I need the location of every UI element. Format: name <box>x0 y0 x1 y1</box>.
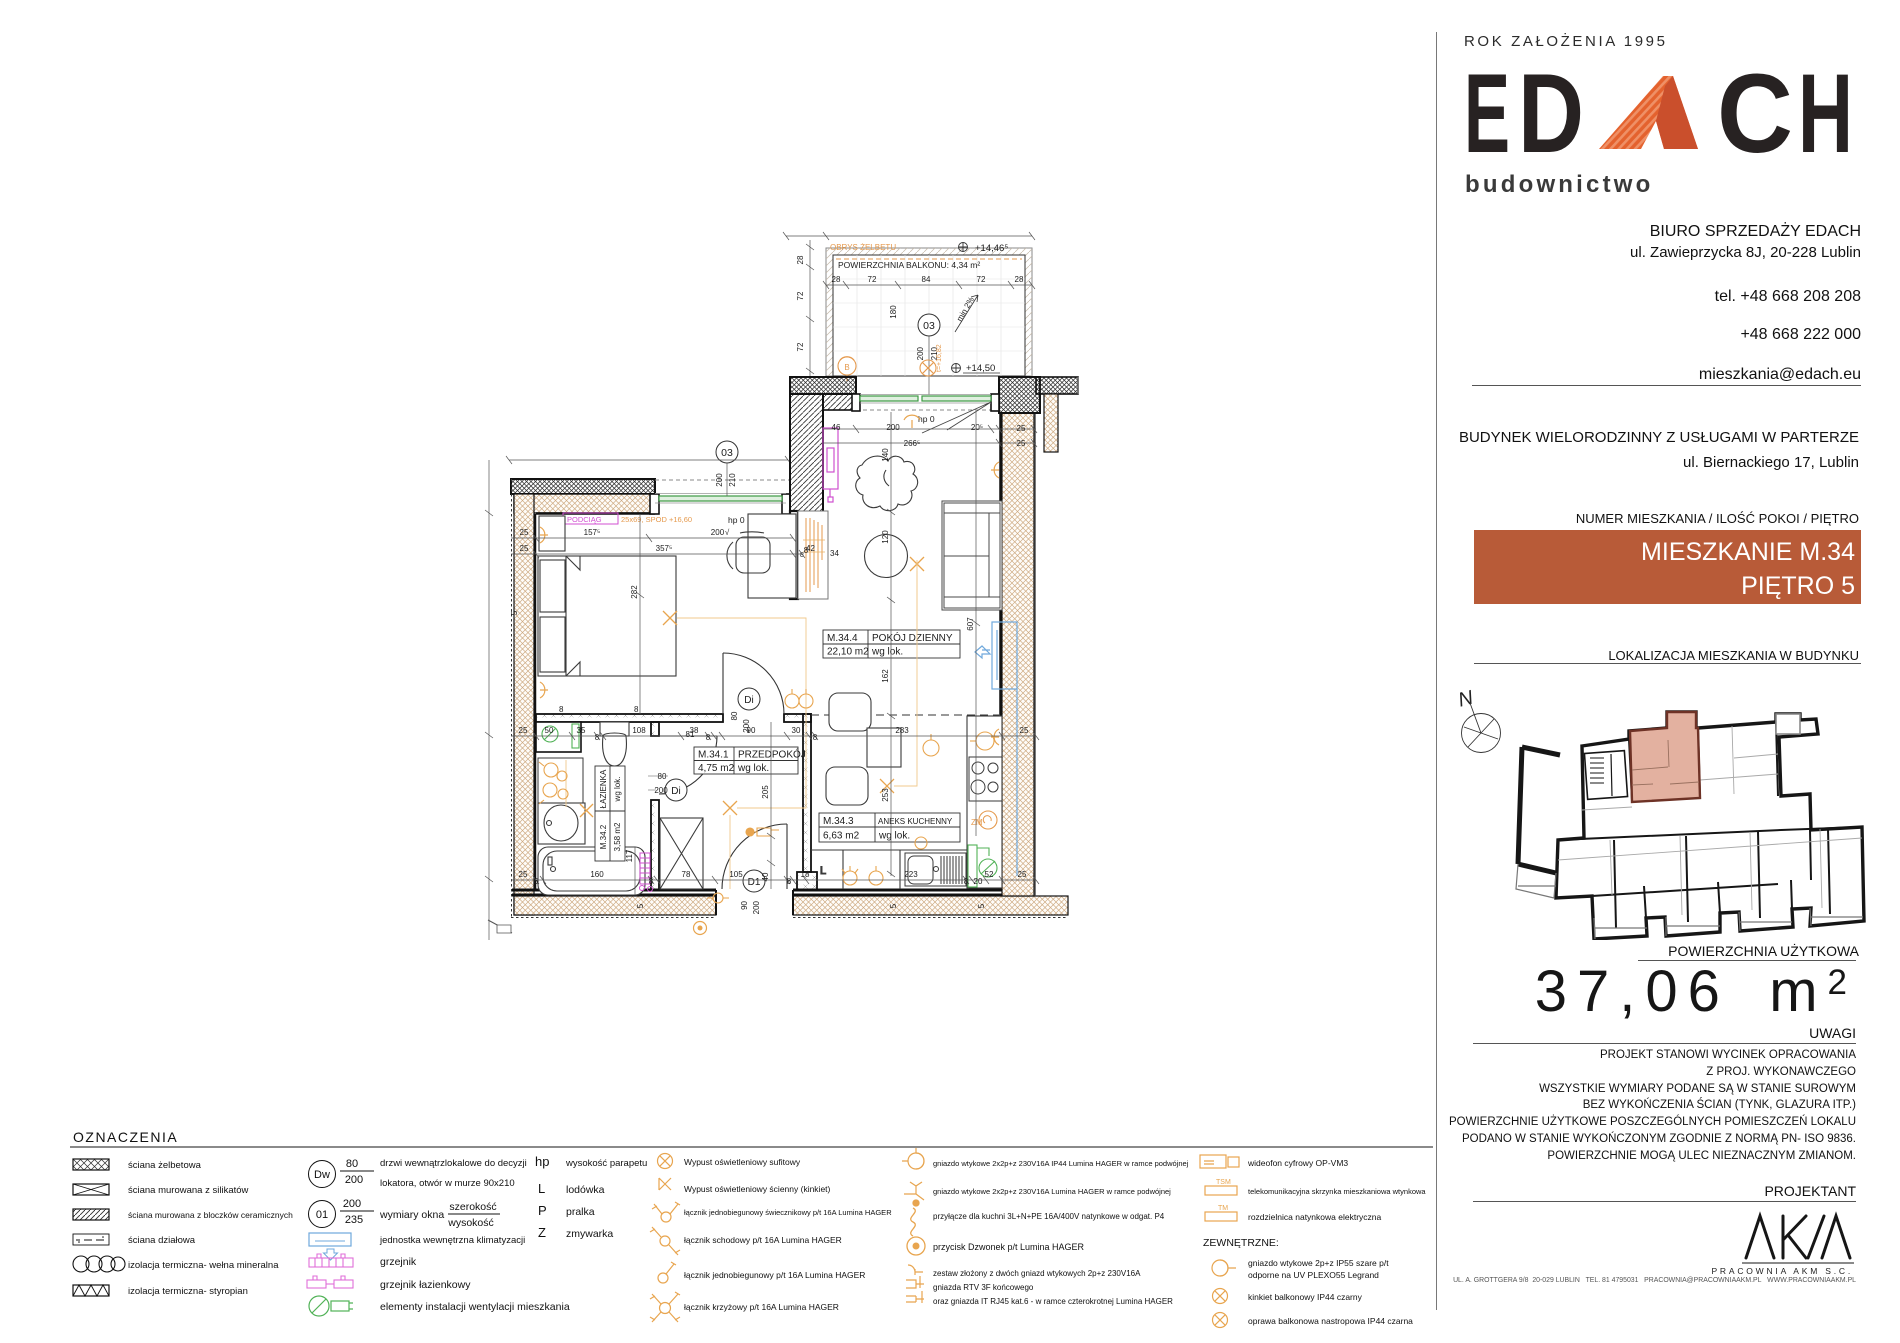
svg-text:01: 01 <box>316 1209 328 1221</box>
svg-text:22,10 m2: 22,10 m2 <box>827 647 869 658</box>
svg-text:200 √: 200 √ <box>711 528 730 537</box>
svg-text:przycisk Dzwonek p/t Lumina HA: przycisk Dzwonek p/t Lumina HAGER <box>933 1242 1085 1252</box>
svg-text:283: 283 <box>895 726 909 735</box>
svg-text:30: 30 <box>792 726 801 735</box>
svg-text:200: 200 <box>345 1174 363 1186</box>
svg-text:wysokość parapetu: wysokość parapetu <box>565 1158 647 1169</box>
svg-text:160: 160 <box>590 870 604 879</box>
svg-text:223: 223 <box>904 870 918 879</box>
svg-text:grzejnik łazienkowy: grzejnik łazienkowy <box>380 1279 471 1291</box>
svg-text:25x69, SPOD +16,60: 25x69, SPOD +16,60 <box>621 515 692 524</box>
svg-text:180: 180 <box>889 305 898 319</box>
svg-text:Z: Z <box>538 1225 546 1240</box>
svg-text:25: 25 <box>1020 726 1029 735</box>
svg-text:235: 235 <box>345 1214 363 1226</box>
svg-text:D1: D1 <box>748 877 761 888</box>
svg-text:POKÓJ DZIENNY: POKÓJ DZIENNY <box>872 631 953 644</box>
svg-text:253: 253 <box>881 788 890 802</box>
svg-text:drzwi wewnątrzlokalowe do decy: drzwi wewnątrzlokalowe do decyzji <box>380 1158 527 1169</box>
svg-text:Wypust oświetleniowy sufitowy: Wypust oświetleniowy sufitowy <box>684 1157 801 1167</box>
svg-text:ściana murowana z bloczków cer: ściana murowana z bloczków ceramicznych <box>128 1210 293 1220</box>
svg-text:90: 90 <box>740 900 749 909</box>
svg-text:wymiary okna: wymiary okna <box>379 1209 444 1221</box>
svg-text:200: 200 <box>715 473 724 487</box>
svg-text:8: 8 <box>813 733 818 742</box>
svg-text:25: 25 <box>1017 424 1026 433</box>
svg-text:ściana działowa: ściana działowa <box>128 1235 196 1246</box>
svg-text:6,63 m2: 6,63 m2 <box>823 831 860 842</box>
svg-text:35: 35 <box>577 726 586 735</box>
svg-text:wg lok.: wg lok. <box>878 831 910 842</box>
svg-text:200: 200 <box>916 346 925 360</box>
svg-text:84: 84 <box>922 275 931 284</box>
svg-text:wg lok.: wg lok. <box>737 763 769 774</box>
svg-text:L: L <box>538 1181 545 1196</box>
svg-text:C: C <box>1717 60 1793 160</box>
svg-text:20⁵: 20⁵ <box>971 423 983 432</box>
svg-text:8: 8 <box>649 877 654 886</box>
svg-text:Di: Di <box>671 786 680 797</box>
svg-text:03: 03 <box>923 320 935 332</box>
svg-text:90: 90 <box>747 726 756 735</box>
svg-text:80: 80 <box>658 772 667 781</box>
svg-text:200: 200 <box>654 786 668 795</box>
svg-text:5: 5 <box>510 610 519 615</box>
svg-text:gniazdo wtykowe 2p+z IP55 szar: gniazdo wtykowe 2p+z IP55 szare p/t <box>1248 1258 1389 1268</box>
svg-text:25: 25 <box>520 544 529 553</box>
svg-text:200: 200 <box>343 1198 361 1210</box>
svg-text:elementy instalacji wentylacji: elementy instalacji wentylacji mieszkani… <box>380 1301 570 1313</box>
svg-text:TM: TM <box>1218 1205 1228 1212</box>
svg-text:zmywarka: zmywarka <box>566 1228 613 1240</box>
svg-text:gniazdo wtykowe 2x2p+z 230V16A: gniazdo wtykowe 2x2p+z 230V16A Lumina HA… <box>933 1187 1171 1196</box>
svg-text:117: 117 <box>625 849 634 862</box>
svg-text:157⁵: 157⁵ <box>584 528 601 537</box>
svg-text:+14,46⁵: +14,46⁵ <box>975 243 1008 254</box>
svg-text:ściana murowana z silikatów: ściana murowana z silikatów <box>128 1185 249 1196</box>
svg-text:52: 52 <box>985 870 994 879</box>
svg-text:ANEKS KUCHENNY: ANEKS KUCHENNY <box>878 817 953 826</box>
svg-text:oprawa balkonowa nastropowa IP: oprawa balkonowa nastropowa IP44 czarna <box>1248 1316 1413 1326</box>
svg-text:izolacja termiczna- styropian: izolacja termiczna- styropian <box>128 1286 248 1297</box>
svg-text:M.34.3: M.34.3 <box>823 816 854 827</box>
svg-text:wg lok.: wg lok. <box>613 777 622 803</box>
svg-text:hp 0: hp 0 <box>918 414 935 424</box>
svg-text:PRZEDPOKÓJ: PRZEDPOKÓJ <box>738 748 806 761</box>
svg-text:72: 72 <box>868 275 877 284</box>
svg-text:25: 25 <box>519 726 528 735</box>
svg-text:łącznik jednobiegunowy p/t 16A: łącznik jednobiegunowy p/t 16A Lumina HA… <box>684 1270 865 1280</box>
svg-text:25: 25 <box>1018 870 1027 879</box>
svg-text:M.34.1: M.34.1 <box>698 750 729 761</box>
svg-text:+14,50: +14,50 <box>966 363 995 374</box>
svg-text:200: 200 <box>752 900 761 914</box>
svg-text:46: 46 <box>832 423 841 432</box>
svg-text:hp 0: hp 0 <box>728 515 745 525</box>
svg-text:8: 8 <box>595 733 600 742</box>
svg-text:200: 200 <box>886 423 900 432</box>
svg-text:P: P <box>538 1203 547 1218</box>
svg-text:Di: Di <box>744 695 753 706</box>
svg-text:L: L <box>820 865 826 877</box>
svg-text:282: 282 <box>630 585 639 599</box>
svg-text:6: 6 <box>534 877 539 886</box>
svg-text:4,75 m2: 4,75 m2 <box>698 763 735 774</box>
svg-text:18: 18 <box>801 870 810 879</box>
svg-text:N: N <box>1456 687 1476 712</box>
svg-text:3,58 m2: 3,58 m2 <box>613 822 622 851</box>
svg-text:łącznik jednobiegunowy świeczn: łącznik jednobiegunowy świecznikowy p/t … <box>684 1208 892 1217</box>
svg-text:5: 5 <box>977 903 986 908</box>
svg-text:Wypust oświetleniowy ścienny (: Wypust oświetleniowy ścienny (kinkiet) <box>684 1184 831 1194</box>
svg-text:20: 20 <box>974 877 983 886</box>
svg-text:izolacja termiczna- wełna mine: izolacja termiczna- wełna mineralna <box>128 1260 279 1271</box>
svg-text:lokatora, otwór w murze 90x210: lokatora, otwór w murze 90x210 <box>380 1178 515 1189</box>
svg-text:kinkiet balkonowy IP44 czarny: kinkiet balkonowy IP44 czarny <box>1248 1292 1363 1302</box>
svg-text:357⁵: 357⁵ <box>656 544 673 553</box>
svg-text:03: 03 <box>721 447 733 459</box>
svg-text:105: 105 <box>729 870 743 879</box>
svg-text:25: 25 <box>520 528 529 537</box>
svg-text:120: 120 <box>881 530 890 544</box>
svg-text:205: 205 <box>761 785 770 799</box>
svg-text:28: 28 <box>796 255 805 264</box>
svg-text:łącznik schodowy p/t 16A Lumi: łącznik schodowy p/t 16A Lumina HAGER <box>684 1235 842 1245</box>
svg-text:gniazdo wtykowe 2x2p+z 230V16A: gniazdo wtykowe 2x2p+z 230V16A IP44 Lumi… <box>933 1159 1189 1168</box>
svg-text:34: 34 <box>830 549 839 558</box>
svg-text:28: 28 <box>832 275 841 284</box>
svg-text:D: D <box>1518 60 1584 160</box>
svg-text:zestaw złożony z dwóch gniazd: zestaw złożony z dwóch gniazd wtykowych … <box>933 1269 1141 1278</box>
svg-text:8: 8 <box>787 877 792 886</box>
svg-text:M.34.4: M.34.4 <box>827 633 858 644</box>
svg-text:Dw: Dw <box>314 1169 330 1181</box>
svg-text:przyłącze dla kuchni 3L+N+PE 1: przyłącze dla kuchni 3L+N+PE 16A/400V na… <box>933 1212 1165 1221</box>
svg-text:81: 81 <box>686 730 695 739</box>
svg-text:72: 72 <box>796 291 805 300</box>
svg-text:ŁAZIENKA: ŁAZIENKA <box>599 769 608 808</box>
svg-text:8: 8 <box>706 733 711 742</box>
svg-text:OBRYS ŻELBETU: OBRYS ŻELBETU <box>830 243 896 252</box>
svg-text:25: 25 <box>1017 439 1026 448</box>
svg-text:5: 5 <box>636 903 645 908</box>
svg-text:25: 25 <box>519 870 528 879</box>
svg-text:28: 28 <box>1015 275 1024 284</box>
svg-text:8: 8 <box>559 705 564 714</box>
svg-text:ZEWNĘTRZNE:: ZEWNĘTRZNE: <box>1203 1237 1279 1249</box>
svg-text:8: 8 <box>634 705 639 714</box>
svg-text:H: H <box>1798 60 1853 160</box>
svg-text:wideofon cyfrowy OP-VM3: wideofon cyfrowy OP-VM3 <box>1247 1158 1348 1168</box>
svg-text:wg lok.: wg lok. <box>871 647 903 658</box>
svg-text:rozdzielnica natynkowa elektry: rozdzielnica natynkowa elektryczna <box>1248 1212 1382 1222</box>
svg-text:telekomunikacyjna skrzynka mie: telekomunikacyjna skrzynka mieszkaniowa … <box>1248 1187 1426 1196</box>
svg-text:lodówka: lodówka <box>566 1184 605 1196</box>
svg-text:8: 8 <box>964 877 969 886</box>
svg-text:266⁵: 266⁵ <box>904 439 921 448</box>
svg-text:szerokość: szerokość <box>449 1201 496 1213</box>
svg-text:M.34.2: M.34.2 <box>599 824 608 849</box>
svg-text:72: 72 <box>796 342 805 351</box>
svg-text:E: E <box>1464 60 1510 160</box>
svg-text:OZNACZENIA: OZNACZENIA <box>73 1129 178 1145</box>
svg-text:PODCIĄG: PODCIĄG <box>567 515 602 524</box>
svg-text:78: 78 <box>682 870 691 879</box>
svg-text:140: 140 <box>881 448 890 462</box>
svg-text:TSM: TSM <box>1216 1179 1231 1186</box>
svg-text:50: 50 <box>545 726 554 735</box>
svg-text:B: B <box>844 363 849 372</box>
svg-text:8: 8 <box>804 546 809 555</box>
svg-text:odporne na UV PLEXO55 Legrand: odporne na UV PLEXO55 Legrand <box>1248 1270 1379 1280</box>
svg-text:POWIERZCHNIA BALKONU: 4,34 m²: POWIERZCHNIA BALKONU: 4,34 m² <box>838 260 980 270</box>
svg-text:607: 607 <box>966 617 975 631</box>
svg-text:80: 80 <box>346 1158 358 1170</box>
svg-text:oraz gniazda IT RJ45 kat.6 - w: oraz gniazda IT RJ45 kat.6 - w ramce czt… <box>933 1297 1173 1306</box>
svg-text:pralka: pralka <box>566 1206 595 1218</box>
svg-text:162: 162 <box>881 669 890 683</box>
svg-text:t=+16,82: t=+16,82 <box>936 344 943 372</box>
svg-text:210: 210 <box>728 473 737 487</box>
svg-text:80: 80 <box>730 711 739 720</box>
svg-text:ściana żelbetowa: ściana żelbetowa <box>128 1160 202 1171</box>
svg-text:wysokość: wysokość <box>447 1217 494 1229</box>
svg-text:108: 108 <box>632 726 646 735</box>
svg-text:jednostka wewnętrzna klimatyza: jednostka wewnętrzna klimatyzacji <box>379 1235 525 1246</box>
svg-text:hp: hp <box>535 1154 549 1169</box>
svg-text:łącznik krzyżowy p/t 16A Lumi: łącznik krzyżowy p/t 16A Lumina HAGER <box>684 1302 839 1312</box>
svg-text:5: 5 <box>889 903 898 908</box>
svg-text:40: 40 <box>761 872 770 881</box>
svg-text:72: 72 <box>977 275 986 284</box>
svg-text:grzejnik: grzejnik <box>380 1256 417 1268</box>
svg-text:gniazda RTV 3F końcowego: gniazda RTV 3F końcowego <box>933 1283 1034 1292</box>
